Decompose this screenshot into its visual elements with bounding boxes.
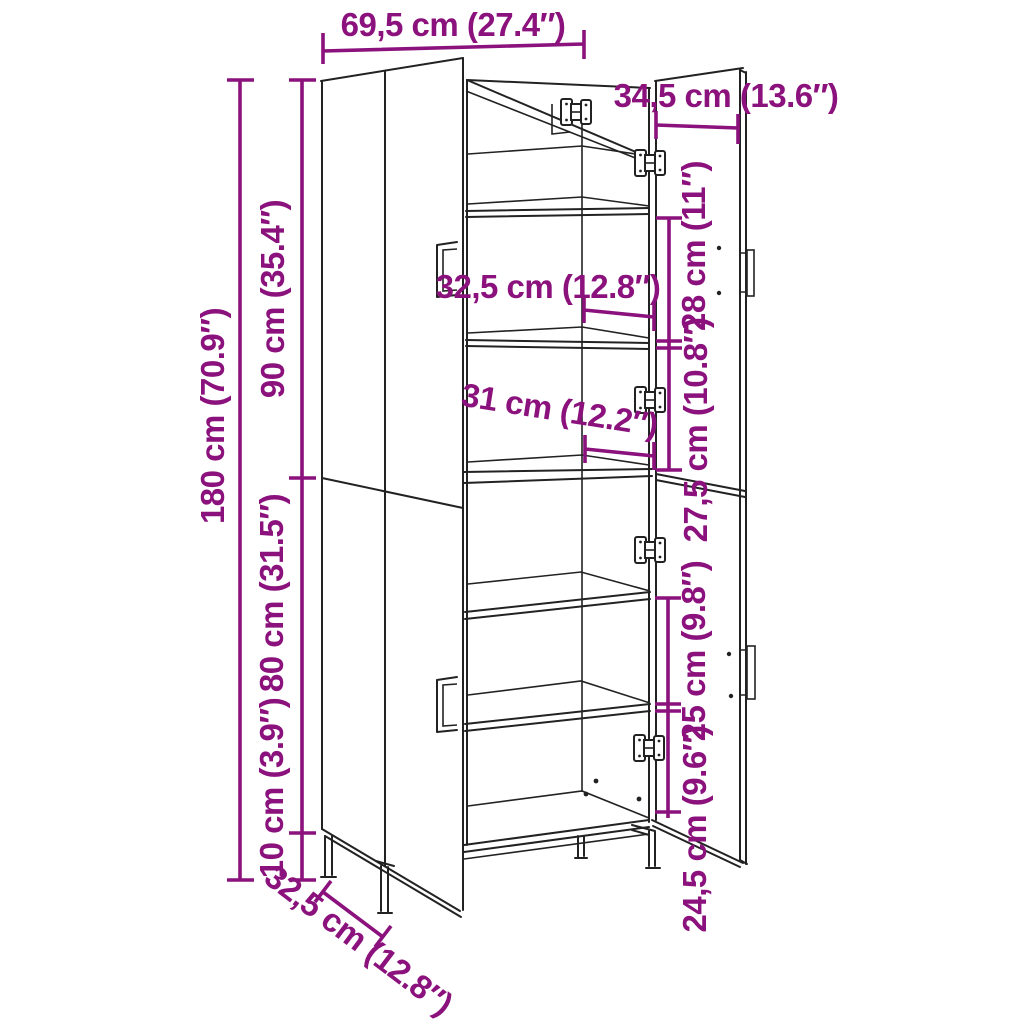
overall-height-label: 180 cm (70.9″) xyxy=(194,308,231,524)
left-side-and-open-left-doors xyxy=(321,58,463,917)
shelf-gap-bottom-label: 24,5 cm (9.6″) xyxy=(676,726,713,933)
shelf-gap-upper-mid-label: 27,5 cm (10.8″) xyxy=(677,318,714,543)
lower-section-height-label: 80 cm (31.5″) xyxy=(253,494,290,692)
lower-left-door-handle xyxy=(437,677,457,732)
door-width-label: 34,5 cm (13.6″) xyxy=(614,77,839,114)
legs-and-base-frame xyxy=(321,825,660,913)
overall-width-label: 69,5 cm (27.4″) xyxy=(341,6,566,43)
hinge-icon xyxy=(561,99,591,125)
cabinet-dimension-drawing: 69,5 cm (27.4″) 34,5 cm (13.6″) 32,5 cm … xyxy=(0,0,1024,1024)
product-dimension-diagram: 69,5 cm (27.4″) 34,5 cm (13.6″) 32,5 cm … xyxy=(0,0,1024,1024)
depth-label: 32,5 cm (12.8″) xyxy=(258,857,460,1022)
dimension-labels: 69,5 cm (27.4″) 34,5 cm (13.6″) 32,5 cm … xyxy=(194,6,838,1022)
inner-width-lower-label: 31 cm (12.2″) xyxy=(459,376,661,444)
inner-width-upper-label: 32,5 cm (12.8″) xyxy=(436,268,661,305)
upper-section-height-label: 90 cm (35.4″) xyxy=(254,200,291,398)
leg-height-label: 10 cm (3.9″) xyxy=(253,698,290,878)
shelf-gap-top-label: 28 cm (11″) xyxy=(675,161,712,331)
shelf-gap-lower-mid-label: 25 cm (9.8″) xyxy=(675,561,712,741)
upper-right-door-handle xyxy=(717,246,754,296)
